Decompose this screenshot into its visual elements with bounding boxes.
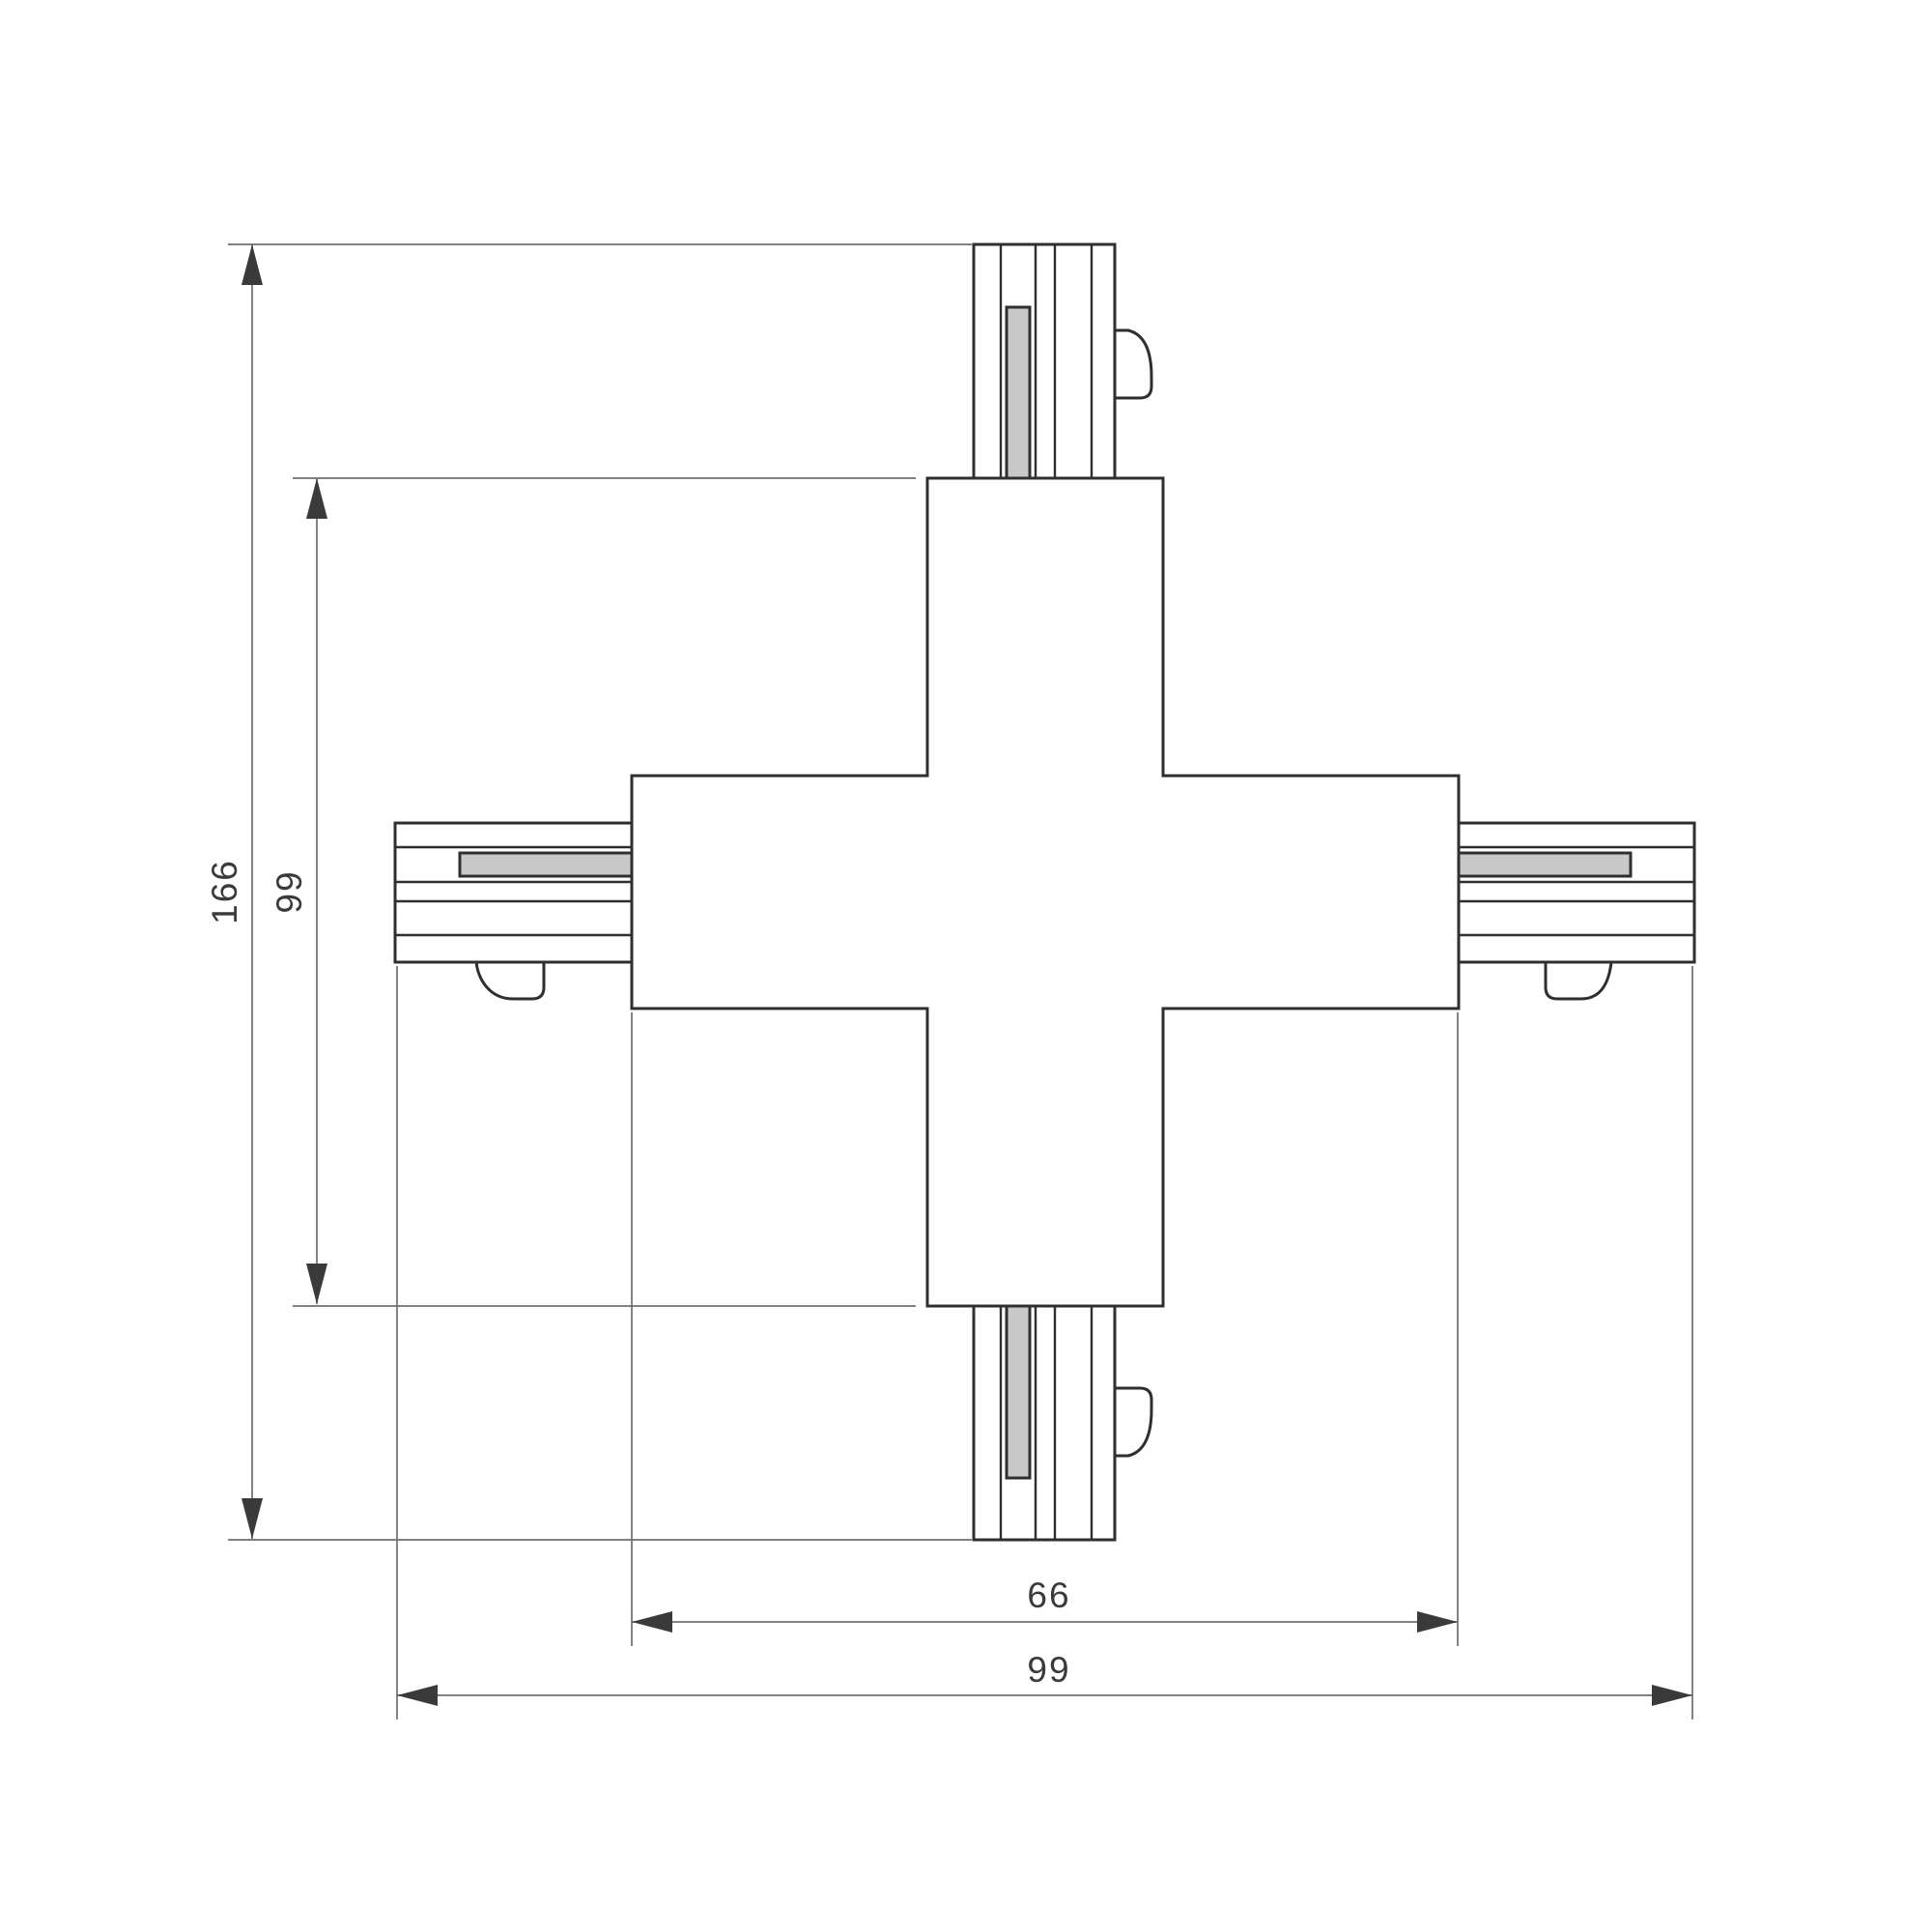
clip-right-track: [1546, 962, 1611, 999]
track-right-body: [1459, 823, 1694, 962]
dim-label-total-height: 166: [205, 859, 244, 924]
track-top-conductor-bar: [1007, 307, 1030, 478]
track-bottom: [974, 1306, 1115, 1540]
track-left: [395, 823, 632, 962]
technical-drawing-canvas: 166 99 66 99: [0, 0, 1932, 1932]
track-right-conductor-bar: [1459, 853, 1631, 876]
clip-left-track: [476, 962, 544, 999]
arrow-left-icon: [632, 1611, 672, 1633]
clip-top-track: [1115, 330, 1151, 398]
arrow-right-icon: [1652, 1685, 1692, 1706]
x-connector-drawing: 166 99 66 99: [0, 0, 1932, 1932]
track-top-body: [974, 244, 1115, 478]
arrow-up-icon: [241, 244, 263, 285]
dim-label-total-width: 99: [1027, 1650, 1070, 1690]
dim-label-body-height: 99: [270, 869, 309, 913]
track-bottom-body: [974, 1306, 1115, 1540]
arrow-left-icon: [397, 1685, 438, 1706]
track-left-conductor-bar: [460, 853, 632, 876]
arrow-right-icon: [1417, 1611, 1458, 1633]
arrow-down-icon: [241, 1498, 263, 1539]
arrow-up-icon: [306, 478, 327, 519]
track-bottom-conductor-bar: [1007, 1306, 1030, 1478]
arrow-down-icon: [306, 1264, 327, 1304]
dim-label-body-width: 66: [1027, 1576, 1070, 1615]
connector-body: [632, 478, 1459, 1306]
track-right: [1459, 823, 1694, 962]
track-left-body: [395, 823, 632, 962]
cross-outline: [632, 478, 1459, 1306]
track-top: [974, 244, 1115, 478]
clip-bottom-track: [1115, 1388, 1151, 1456]
